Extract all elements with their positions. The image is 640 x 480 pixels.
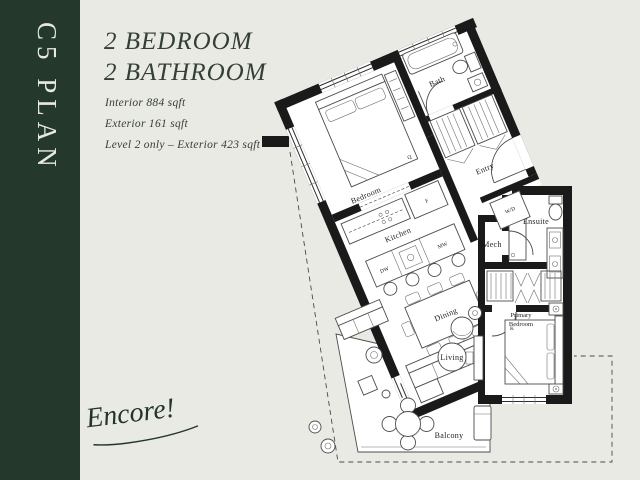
room-label-balcony: Balcony [435, 431, 464, 440]
ensuite-toilet [549, 196, 562, 220]
room-label-mech: Mech [482, 240, 501, 249]
room-label-primary-1: Primary [511, 312, 533, 319]
room-label-primary-2: Bedroom [509, 321, 533, 328]
room-label-living: Living [440, 353, 463, 362]
primary-window [502, 395, 546, 404]
ensuite-vanity [547, 228, 563, 278]
brochure-page: C5 PLAN 2 BEDROOM 2 BATHROOM Interior 88… [0, 0, 640, 480]
floorplan: Q F DW MW [0, 0, 640, 480]
